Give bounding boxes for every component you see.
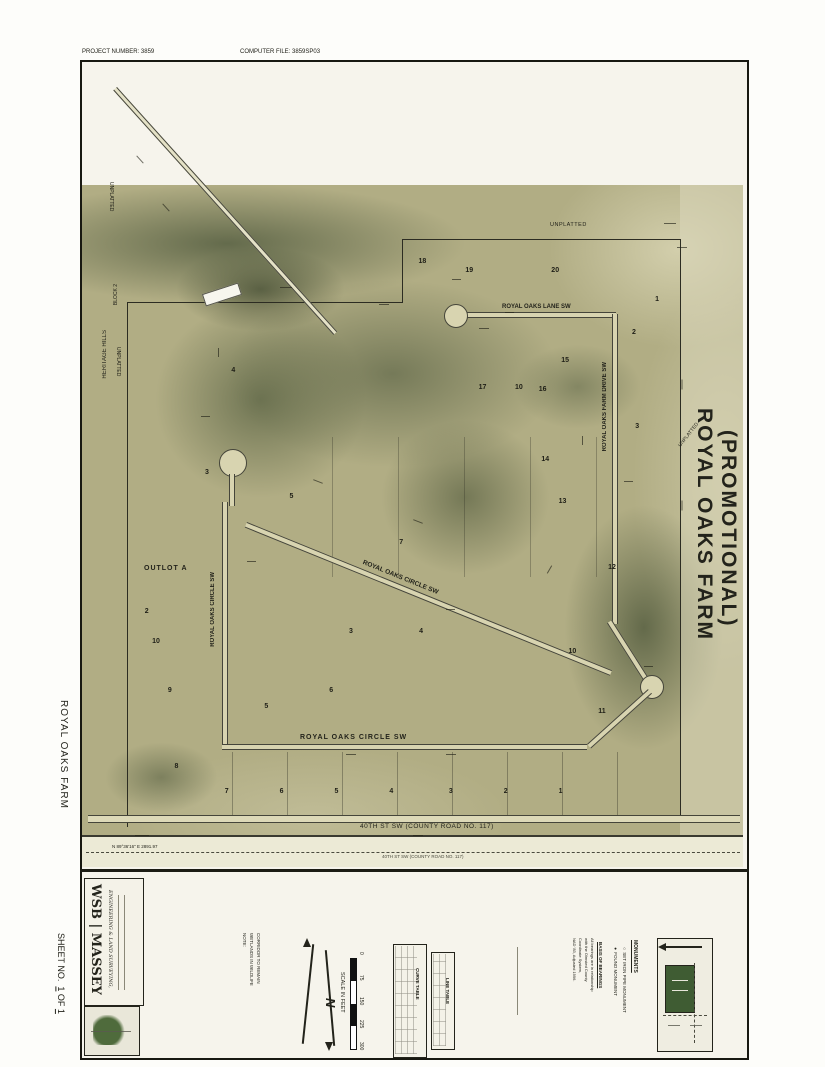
lot-number: 19 [465,267,473,274]
lot-number: 7 [225,788,229,795]
lot-number: 17 [479,384,487,391]
line-table [431,952,455,1050]
titleblock-divider [80,869,749,872]
lot-number: 12 [608,564,616,571]
wetlands-note: NOTE:WETLANDS IN WILDLIFECORRIDOR TO REM… [242,933,266,1013]
firm-tagline: ENGINEERING & LAND SURVEYING, [107,890,113,988]
thumbnail-map-road [91,1031,131,1032]
scale-tick: 300 [358,1042,364,1050]
scale-ticks: 075150225300 [358,952,372,1054]
scale-tick: 75 [358,975,364,981]
lot-number: 4 [389,788,393,795]
curve-table-grid [395,946,417,1054]
scale-tick: 225 [358,1020,364,1028]
bearings-title: BASIS OF BEARINGS [598,942,603,988]
lot-number: 6 [280,788,284,795]
lot-number: 6 [329,687,333,694]
bearings-line-1: All bearings are in relationship [590,938,595,992]
scale-tick: 0 [358,952,364,955]
lot-number: 14 [541,456,549,463]
plat-location-text-1 [672,980,688,981]
plat-location-text-2 [672,990,688,991]
lot-number: 8 [175,763,179,770]
lot-number: 1 [655,296,659,303]
lot-number: 10 [515,384,523,391]
project-number: PROJECT NUMBER: 3859 [82,49,154,55]
sheet-number: SHEET NO. 1 OF 1 [56,933,66,1014]
misc-note-line [517,947,518,1015]
bearings-line-2: with the Olmsted County [584,938,589,982]
note-line: WETLANDS IN WILDLIFE [249,933,254,986]
quarter-label-2 [690,1025,702,1026]
lot-number: 5 [264,703,268,710]
section-location-map [657,938,713,1052]
legend-block: MONUMENTS ○ SET IRON PIPE MONUMENT ● FOU… [560,930,646,1054]
lot-number: 20 [551,267,559,274]
lot-number: 10 [152,638,160,645]
curve-table-title: CURVE TABLE [415,968,420,1000]
lot-number: 15 [561,357,569,364]
thumbnail-map-box [84,1006,140,1056]
lot-number: 3 [449,788,453,795]
computer-file: COMPUTER FILE: 3859SP03 [240,49,320,55]
firm-address-line [118,895,119,990]
lot-number: 1 [559,788,563,795]
lot-number: 3 [635,423,639,430]
north-arrow-shaft [302,944,314,1044]
lot-number: 13 [559,498,567,505]
lot-number: 7 [399,539,403,546]
bearings-line-3: Coordinate System, [578,938,583,973]
location-arrow-head [658,943,666,951]
lot-number: 3 [205,469,209,476]
scale-label: SCALE IN FEET [339,972,345,1013]
lot-number: 11 [598,708,605,715]
plat-map: ROYAL OAKS LANE SW ROYAL OAKS FARM DRIVE… [82,62,743,867]
scale-bar [350,958,357,1050]
lot-number: 2 [632,329,636,336]
note-line: CORRIDOR TO REMAIN [256,933,261,984]
curve-table [393,944,427,1058]
location-arrow [664,946,702,948]
arrow-2-head [325,1042,333,1051]
sheet-title-line1: ROYAL OAKS FARM [692,408,716,641]
firm-name: WSB | MASSEY [88,884,103,995]
lot-number: 10 [568,648,576,655]
lot-number: 2 [504,788,508,795]
lot-number: 5 [335,788,339,795]
lot-number: 16 [539,386,547,393]
lot-number: 9 [168,687,172,694]
quarter-label-1 [668,1025,680,1026]
lot-number: 18 [418,258,426,265]
thumbnail-map-area [93,1015,125,1045]
lot-number: 5 [290,493,294,500]
quarter-line-h [663,1015,707,1016]
plat-sheet: PROJECT NUMBER: 3859 COMPUTER FILE: 3859… [0,0,825,1067]
sheet-title-line2: (PROMOTIONAL) [716,430,740,627]
firm-phone-line [124,895,125,990]
legend-title: MONUMENTS [632,940,638,973]
note-line: NOTE: [242,933,247,947]
scale-tick: 150 [358,997,364,1005]
lot-number: 3 [349,628,353,635]
lot-number: 4 [231,367,235,374]
lot-numbers: 1819201215161017314435713122103465101198… [82,62,743,867]
quarter-line-v [694,963,695,1043]
north-arrow-head [303,938,311,947]
legend-item-set: ○ SET IRON PIPE MONUMENT [622,946,627,1013]
left-margin-title: ROYAL OAKS FARM [58,700,69,809]
bearings-line-4: NAD '83, Adjusted 1996. [572,938,577,981]
lot-number: 2 [145,608,149,615]
line-table-title: LINE TABLE [445,978,450,1004]
legend-item-found: ● FOUND MONUMENT [613,946,618,996]
lot-number: 4 [419,628,423,635]
plat-location-shaded [665,965,695,1013]
